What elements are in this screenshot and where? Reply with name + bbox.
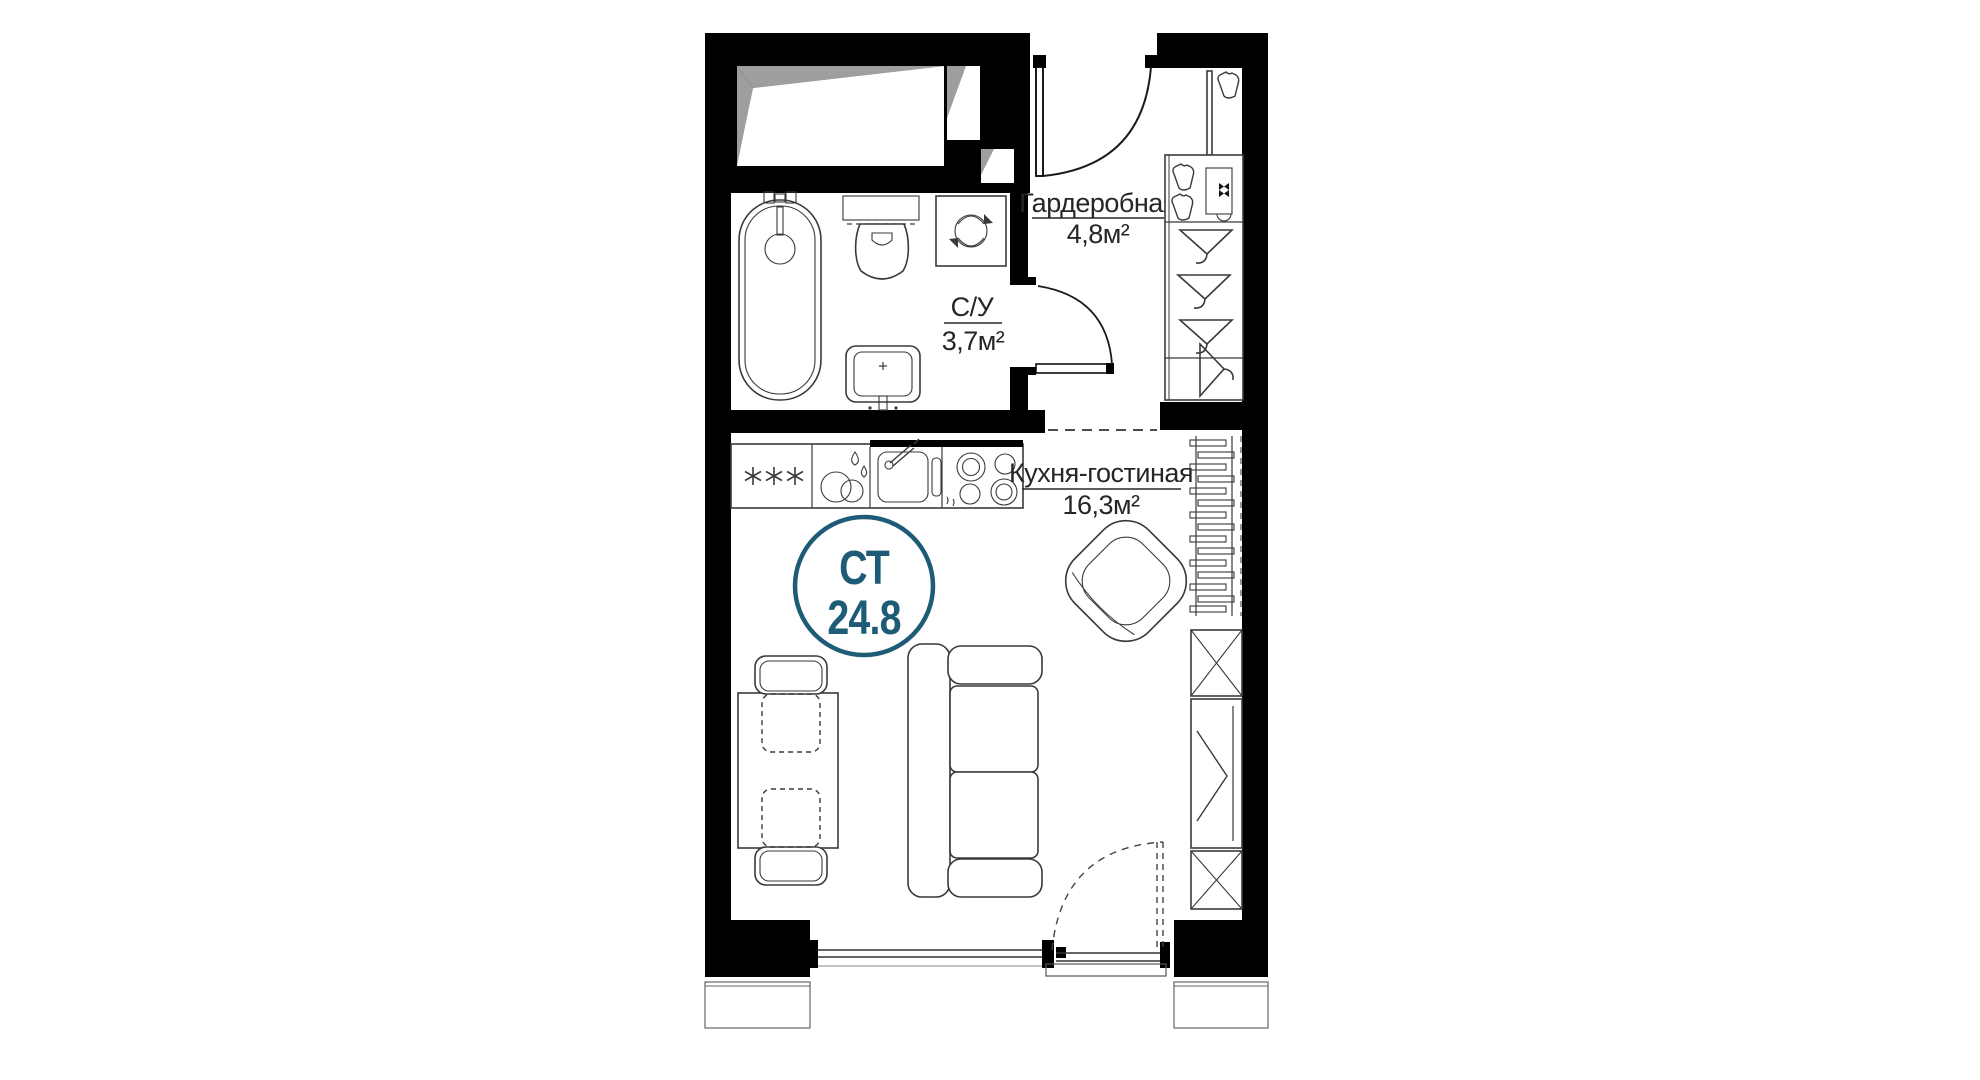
wardrobe-cabinet bbox=[1165, 155, 1243, 400]
wardrobe-room-area: 4,8м² bbox=[1067, 219, 1130, 249]
kitchen-living-name: Кухня-гостиная bbox=[1009, 458, 1193, 488]
wardrobe-room: Гардеробная 4,8м² bbox=[1019, 71, 1243, 400]
balcony-door bbox=[1046, 842, 1170, 976]
dining-table bbox=[738, 693, 838, 848]
area-badge: СТ 24.8 bbox=[795, 517, 933, 655]
badge-type-label: СТ bbox=[839, 541, 890, 595]
armchair bbox=[1052, 507, 1199, 654]
balcony-door-leaf-dashed bbox=[1157, 842, 1163, 950]
bathroom-door-leaf bbox=[1036, 364, 1112, 373]
bathroom-area: 3,7м² bbox=[942, 326, 1005, 356]
ladder-shelf bbox=[1190, 436, 1241, 616]
wardrobe-side-panel bbox=[1207, 71, 1212, 155]
bathroom-door-swing-arc bbox=[1038, 286, 1112, 364]
sofa bbox=[908, 644, 1042, 897]
washing-machine bbox=[936, 196, 1006, 266]
door-threshold bbox=[1046, 964, 1166, 976]
storage-box-top bbox=[1191, 630, 1242, 696]
fridge-snowflake-icons bbox=[745, 467, 803, 485]
bathtub bbox=[739, 192, 821, 400]
balcony-door-swing-arc-dashed bbox=[1052, 842, 1163, 950]
toilet bbox=[843, 196, 919, 279]
wardrobe-room-name: Гардеробная bbox=[1019, 188, 1177, 218]
kitchen: Кухня-гостиная 16,3м² bbox=[731, 430, 1193, 520]
adjacent-structure-below bbox=[705, 982, 1268, 1028]
bathroom-name: С/У bbox=[951, 292, 995, 322]
tall-cabinet bbox=[1191, 699, 1242, 848]
window bbox=[808, 940, 1054, 968]
entrance-door-leaf bbox=[1036, 67, 1043, 176]
storage-box-bottom bbox=[1191, 851, 1242, 909]
kitchen-living-area: 16,3м² bbox=[1062, 490, 1140, 520]
bathroom: С/У 3,7м² bbox=[739, 192, 1114, 410]
entrance-door-swing-arc bbox=[1043, 67, 1151, 176]
floor-plan-canvas: Гардеробная 4,8м² bbox=[0, 0, 1980, 1080]
entrance-door bbox=[1033, 55, 1158, 176]
bathroom-sink bbox=[846, 346, 920, 410]
coat-icon bbox=[1218, 72, 1239, 98]
floor-plan: Гардеробная 4,8м² bbox=[0, 0, 1980, 1080]
badge-area-value: 24.8 bbox=[827, 591, 901, 645]
bathroom-door bbox=[1010, 277, 1114, 375]
